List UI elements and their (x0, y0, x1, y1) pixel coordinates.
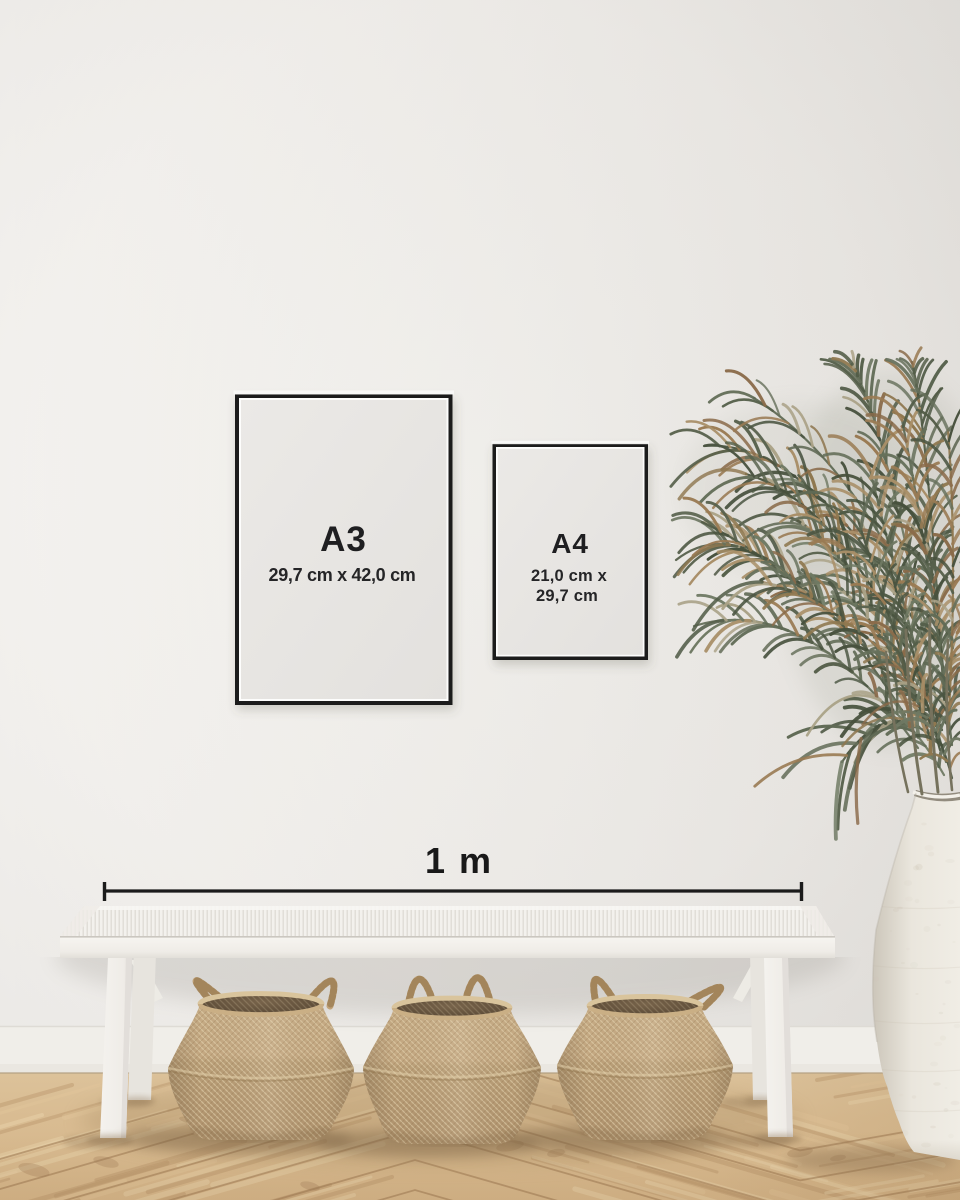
svg-text:29,7 cm x 42,0 cm: 29,7 cm x 42,0 cm (268, 565, 415, 585)
svg-text:A3: A3 (320, 520, 367, 559)
svg-text:29,7 cm: 29,7 cm (536, 587, 598, 605)
svg-text:1 m: 1 m (425, 840, 493, 881)
svg-text:21,0 cm x: 21,0 cm x (531, 567, 608, 585)
svg-text:A4: A4 (551, 528, 588, 559)
